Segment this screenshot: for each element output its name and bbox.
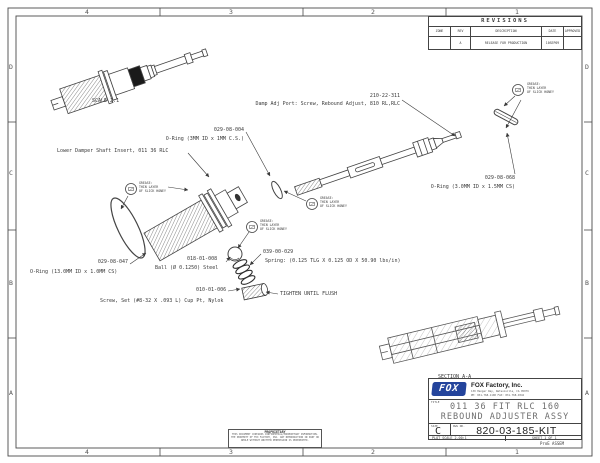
proe-note: ProE ASSEM <box>540 441 564 446</box>
zone-label-bottom: 1 <box>515 448 519 456</box>
zone-label-top: 4 <box>85 8 89 16</box>
ball <box>228 247 242 261</box>
proprietary-body: THIS DOCUMENT CONTAINS CONFIDENTIAL/PROP… <box>229 434 321 442</box>
sheet-number: SHEET 1 OF 1 <box>532 436 557 440</box>
grease-note: GREASE: THIN LAYER OF SLICK HONEY <box>320 196 347 208</box>
zone-label-top: 3 <box>229 8 233 16</box>
grease-note: GREASE: THIN LAYER OF SLICK HONEY <box>260 219 287 231</box>
revision-rev: A <box>451 37 471 49</box>
grease-note-line: OF SLICK HONEY <box>527 90 554 94</box>
company-address-line1: 130 Hangar Way, Watsonville, CA 95076 <box>471 390 529 393</box>
revisions-col-header: APPROVED <box>564 27 581 37</box>
zone-label-right: D <box>585 63 589 71</box>
company-address-line2: PH: 831-768-1100 FAX: 831-768-9342 <box>471 394 524 397</box>
oring-3mm-desc: O-Ring (3MM ID x 1MM C.S.) <box>166 136 244 142</box>
revisions-table: REVISIONS ZONE REV DESCRIPTION DATE APPR… <box>428 16 582 50</box>
zone-label-top: 2 <box>371 8 375 16</box>
oring-3mm-part-no: 029-08-004 <box>214 127 244 133</box>
revisions-title: REVISIONS <box>429 17 581 27</box>
revision-approved <box>564 37 581 49</box>
oring-3-0mm-part-no: 029-08-068 <box>485 175 515 181</box>
oring-13mm-part-no: 029-08-047 <box>98 259 128 265</box>
revision-description: RELEASE FOR PRODUCTION <box>471 37 542 49</box>
zone-label-right: A <box>585 389 589 397</box>
title-block: FOX FOX Factory, Inc. 130 Hangar Way, Wa… <box>428 378 582 440</box>
set-screw <box>242 283 269 300</box>
drawing-title-line1: 011 36 FIT RLC 160 <box>429 402 581 412</box>
grease-note: GREASE: THIN LAYER OF SLICK HONEY <box>527 82 554 94</box>
revisions-header-row: ZONE REV DESCRIPTION DATE APPROVED <box>429 27 581 37</box>
scale-note: SCALE 2:1 <box>92 98 119 104</box>
revision-date: 10SEP09 <box>542 37 564 49</box>
zone-label-left: D <box>9 63 13 71</box>
set-screw-part-no: 010-01-006 <box>196 287 226 293</box>
revision-row: A RELEASE FOR PRODUCTION 10SEP09 <box>429 37 581 49</box>
revisions-col-header: REV <box>451 27 471 37</box>
company-name: FOX Factory, Inc. <box>471 382 522 389</box>
zone-label-left: B <box>9 279 13 287</box>
damp-adj-desc: Damp Adj Port: Screw, Rebound Adjust, 81… <box>256 101 401 107</box>
spring-desc: Spring: (0.125 TLG X 0.125 OD X 50.90 lb… <box>265 258 400 264</box>
fox-logo: FOX <box>431 382 466 396</box>
oring-3mm <box>270 180 285 200</box>
zone-label-top: 1 <box>515 8 519 16</box>
zone-label-left: C <box>9 169 13 177</box>
tighten-note: TIGHTEN UNTIL FLUSH <box>280 291 337 297</box>
grease-note: GREASE: THIN LAYER OF SLICK HONEY <box>139 181 166 193</box>
oring-13mm-desc: O-Ring (13.0MM ID x 1.0MM CS) <box>30 269 117 275</box>
grease-note-line: OF SLICK HONEY <box>260 227 287 231</box>
zone-label-bottom: 2 <box>371 448 375 456</box>
title-block-divider <box>429 423 581 424</box>
zone-label-left: A <box>9 389 13 397</box>
set-screw-desc: Screw, Set (#8-32 X .093 L) Cup Pt, Nylo… <box>100 298 223 304</box>
shaft-insert-desc: Lower Damper Shaft Insert, 011 36 RLC <box>57 148 168 154</box>
ball-desc: Ball (Ø 0.1250) Steel <box>155 265 218 271</box>
grease-note-line: OF SLICK HONEY <box>139 189 166 193</box>
damp-adj-part-no: 210-22-311 <box>370 93 400 99</box>
revision-zone <box>429 37 451 49</box>
zone-label-bottom: 3 <box>229 448 233 456</box>
grease-note-line: OF SLICK HONEY <box>320 204 347 208</box>
section-view <box>378 298 562 366</box>
zone-label-bottom: 4 <box>85 448 89 456</box>
revisions-col-header: DESCRIPTION <box>471 27 542 37</box>
assembled-view <box>47 36 212 121</box>
title-block-divider <box>505 435 506 441</box>
plot-scale: PLOT SCALE 2.00:1 <box>432 436 467 440</box>
spring-part-no: 039-00-029 <box>263 249 293 255</box>
zone-label-right: B <box>585 279 589 287</box>
proprietary-note: PROPRIETARY THIS DOCUMENT CONTAINS CONFI… <box>228 429 322 448</box>
title-block-divider <box>429 399 581 400</box>
drawing-sheet: 4 3 2 1 4 3 2 1 D C B A D C B A REVISION… <box>0 0 600 463</box>
drawing-title-line2: REBOUND ADJUSTER ASSY <box>429 412 581 422</box>
oring-13mm <box>105 194 152 262</box>
revisions-col-header: ZONE <box>429 27 451 37</box>
oring-3-0mm-desc: O-Ring (3.0MM ID x 1.5MM CS) <box>431 184 515 190</box>
revisions-col-header: DATE <box>542 27 564 37</box>
zone-label-right: C <box>585 169 589 177</box>
ball-part-no: 018-01-008 <box>187 256 217 262</box>
